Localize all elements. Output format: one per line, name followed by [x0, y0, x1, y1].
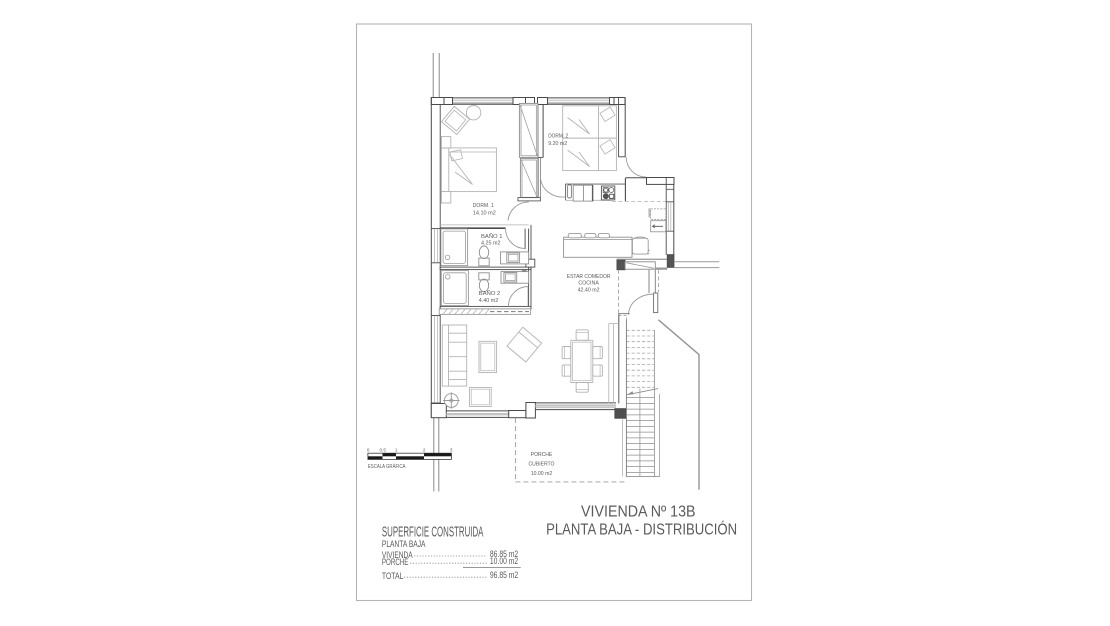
svg-text:10.00 m2: 10.00 m2 — [490, 556, 518, 567]
svg-text:4.25 m2: 4.25 m2 — [481, 241, 501, 247]
svg-text:PORCHE: PORCHE — [382, 557, 409, 568]
svg-text:1: 1 — [395, 448, 398, 453]
svg-text:TOTAL: TOTAL — [382, 571, 404, 582]
svg-text:DORM. 2: DORM. 2 — [548, 133, 568, 139]
svg-text:PLANTA BAJA: PLANTA BAJA — [382, 539, 426, 550]
svg-text:BAÑO 1: BAÑO 1 — [481, 233, 503, 240]
svg-text:0: 0 — [367, 448, 370, 453]
svg-text:ESTAR COMEDOR: ESTAR COMEDOR — [567, 274, 611, 280]
svg-text:BAÑO 2: BAÑO 2 — [479, 290, 501, 297]
svg-text:CUBIERTO: CUBIERTO — [529, 462, 555, 468]
svg-text:COCINA: COCINA — [578, 281, 599, 287]
svg-text:DORM. 1: DORM. 1 — [473, 203, 494, 209]
svg-text:10.00 m2: 10.00 m2 — [531, 471, 553, 477]
svg-text:ESCALA GRÁFICA: ESCALA GRÁFICA — [368, 463, 406, 470]
svg-text:14.10 m2: 14.10 m2 — [473, 211, 496, 217]
svg-text:9.20 m2: 9.20 m2 — [548, 141, 567, 147]
svg-text:2: 2 — [423, 448, 426, 453]
svg-text:PORCHE: PORCHE — [531, 452, 553, 458]
svg-text:PLANTA BAJA - DISTRIBUCIÓN: PLANTA BAJA - DISTRIBUCIÓN — [546, 519, 737, 538]
svg-text:96.85 m2: 96.85 m2 — [490, 570, 518, 581]
svg-text:42.40 m2: 42.40 m2 — [578, 287, 600, 293]
svg-text:0.5: 0.5 — [380, 448, 387, 453]
svg-text:3: 3 — [450, 448, 453, 453]
svg-text:4.40 m2: 4.40 m2 — [479, 298, 499, 304]
svg-text:VIVIENDA Nº 13B: VIVIENDA Nº 13B — [581, 504, 696, 521]
